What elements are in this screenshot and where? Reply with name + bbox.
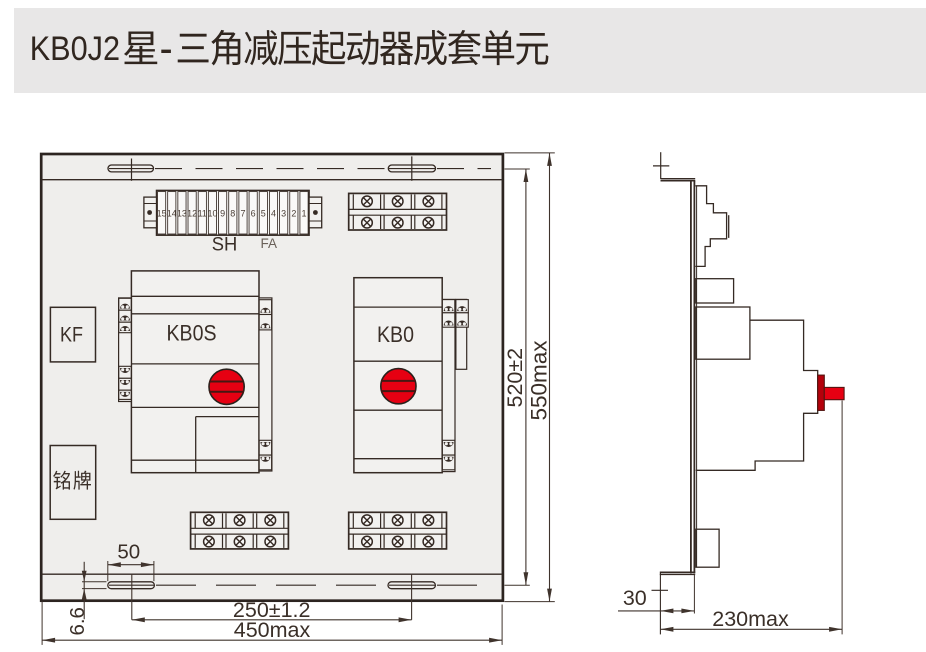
svg-text:KB0J2: KB0J2 <box>30 30 120 68</box>
svg-text:30: 30 <box>623 586 647 610</box>
svg-text:450max: 450max <box>234 618 311 642</box>
svg-text:12: 12 <box>187 208 197 218</box>
svg-text:FA: FA <box>261 236 278 251</box>
svg-text:5: 5 <box>261 208 266 218</box>
svg-text:50: 50 <box>117 540 140 563</box>
svg-text:KB0S: KB0S <box>167 320 217 345</box>
svg-text:KF: KF <box>60 322 83 346</box>
svg-text:4: 4 <box>271 208 276 218</box>
svg-text:6.6: 6.6 <box>66 607 89 636</box>
svg-text:SH: SH <box>212 233 238 255</box>
svg-text:15: 15 <box>157 208 167 218</box>
svg-text:8: 8 <box>230 208 235 218</box>
svg-text:11: 11 <box>198 208 207 218</box>
svg-text:1: 1 <box>302 208 307 218</box>
svg-text:10: 10 <box>207 208 217 218</box>
svg-text:6: 6 <box>251 208 256 218</box>
svg-text:520±2: 520±2 <box>503 348 527 408</box>
svg-text:550max: 550max <box>526 340 551 421</box>
svg-text:230max: 230max <box>712 607 789 631</box>
svg-text:3: 3 <box>281 208 286 218</box>
svg-text:9: 9 <box>220 208 225 218</box>
svg-text:13: 13 <box>177 208 187 218</box>
svg-text:14: 14 <box>167 208 177 218</box>
svg-text:KB0: KB0 <box>377 322 414 347</box>
svg-text:2: 2 <box>291 208 296 218</box>
svg-text:7: 7 <box>240 208 245 218</box>
